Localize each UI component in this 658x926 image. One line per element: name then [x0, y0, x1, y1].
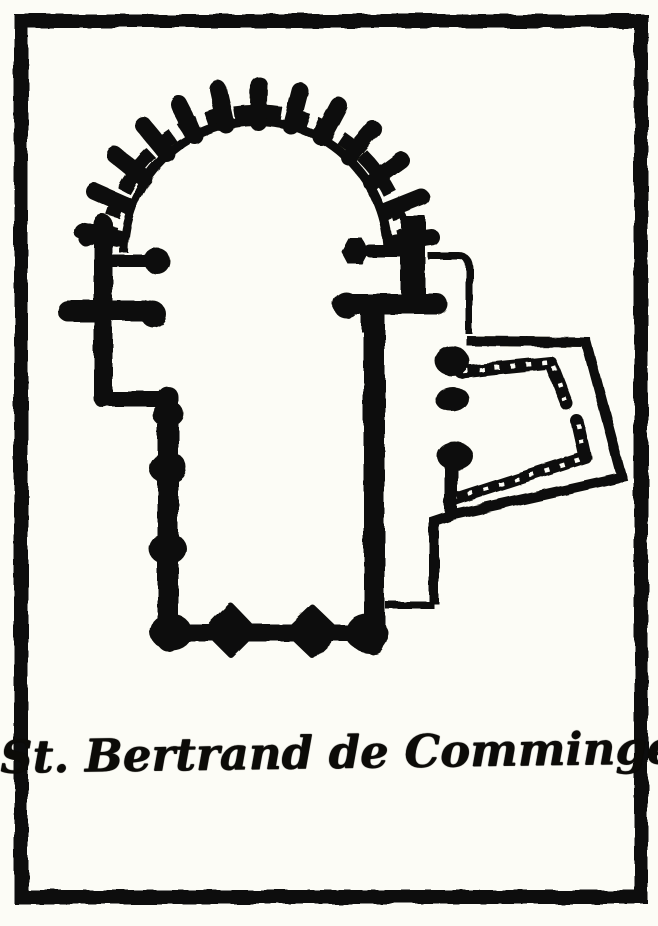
wall-foot	[350, 621, 388, 653]
right-transept-knob	[333, 292, 359, 318]
church-floor-plan-drawing	[0, 0, 658, 926]
cloister-arcade	[450, 363, 585, 501]
apse-chevet	[82, 85, 431, 253]
cloister-arcade-north	[461, 363, 567, 404]
left-chapel-pier-knob	[144, 248, 170, 274]
nave-right-wall	[350, 304, 388, 653]
left-transept-knob	[140, 301, 166, 327]
figure-caption: St. Bertrand de Comminges	[0, 721, 658, 783]
wall-buttress	[149, 452, 187, 484]
left-springer-corbel	[86, 231, 106, 240]
nave-left-wall	[149, 397, 192, 650]
wall-buttress	[152, 401, 184, 427]
choir-left-wall	[68, 224, 170, 398]
scanned-book-page: St. Bertrand de Comminges	[0, 0, 658, 926]
cloister-pier	[435, 386, 469, 412]
right-chapel-pier-knob	[341, 238, 369, 264]
west-front-buttress-pier	[288, 608, 338, 656]
cloister-pier	[435, 346, 469, 376]
left-wall-step	[103, 392, 165, 399]
west-front-buttress-pier	[207, 606, 255, 655]
wall-buttress	[149, 533, 187, 565]
